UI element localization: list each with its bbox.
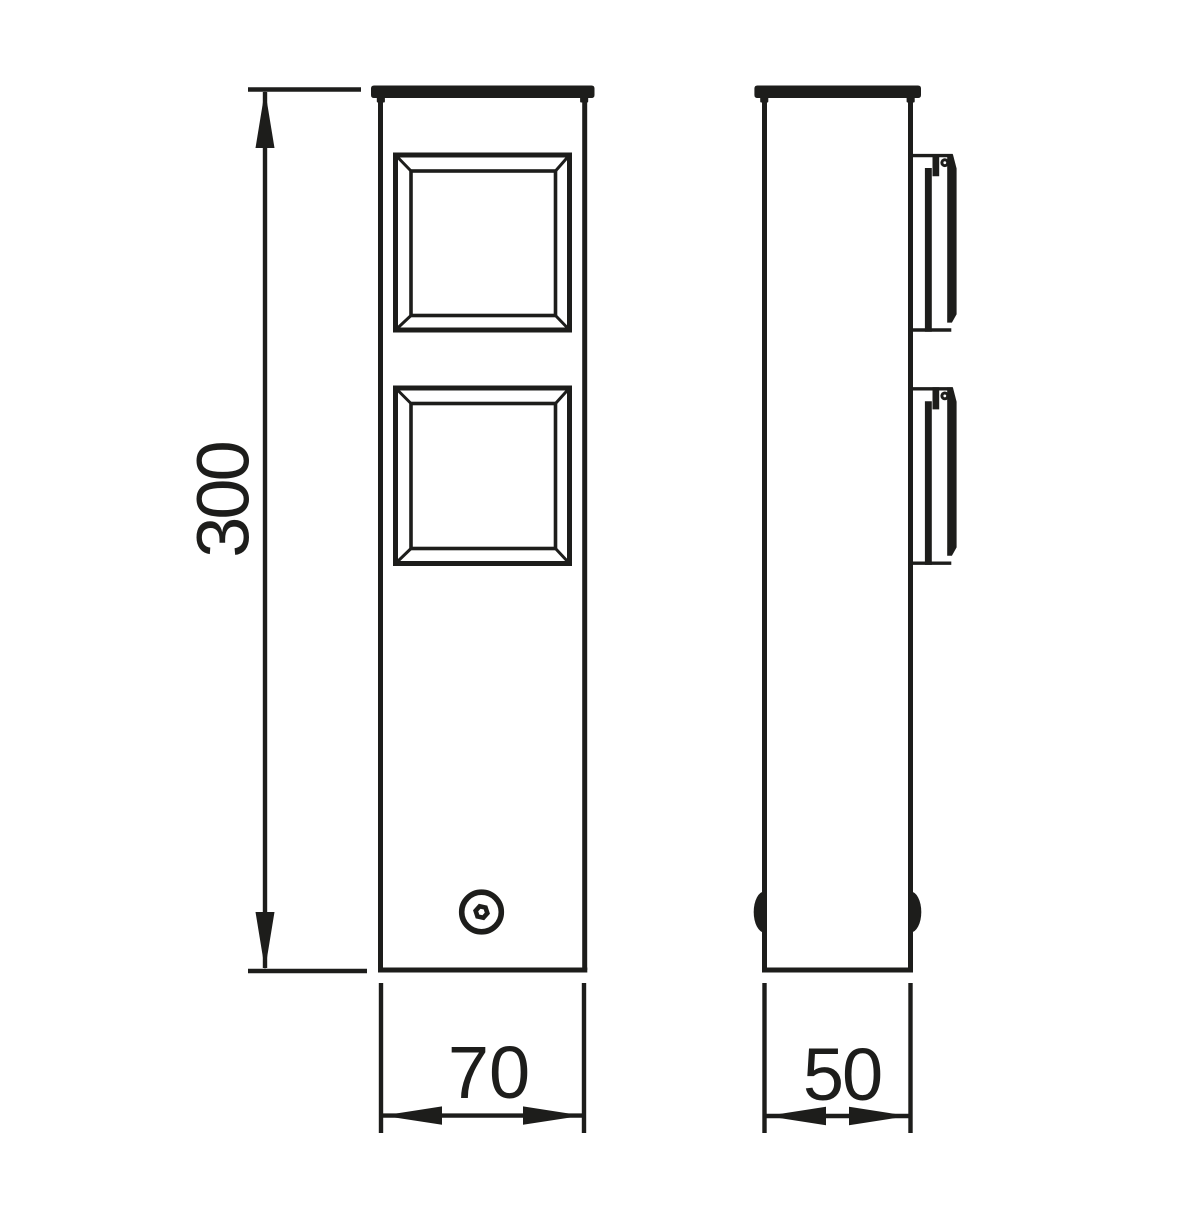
- svg-text:300: 300: [182, 442, 265, 557]
- svg-text:70: 70: [448, 1031, 530, 1114]
- svg-text:50: 50: [803, 1033, 881, 1116]
